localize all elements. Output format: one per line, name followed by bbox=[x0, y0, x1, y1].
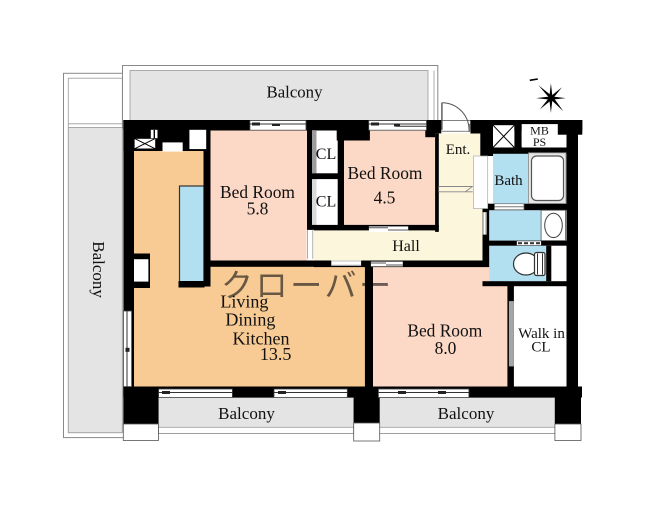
svg-text:Dining: Dining bbox=[225, 310, 275, 330]
svg-text:Balcony: Balcony bbox=[218, 404, 275, 423]
svg-text:CL: CL bbox=[316, 146, 336, 163]
svg-text:Bath: Bath bbox=[494, 173, 523, 189]
svg-text:Hall: Hall bbox=[392, 238, 420, 255]
svg-text:8.0: 8.0 bbox=[435, 338, 457, 358]
svg-text:Balcony: Balcony bbox=[267, 83, 324, 102]
svg-text:Ent.: Ent. bbox=[446, 142, 471, 158]
svg-text:5.8: 5.8 bbox=[247, 199, 269, 219]
svg-text:Living: Living bbox=[220, 292, 268, 312]
svg-text:PS: PS bbox=[533, 135, 546, 149]
svg-text:4.5: 4.5 bbox=[374, 187, 396, 207]
svg-text:Balcony: Balcony bbox=[89, 241, 108, 298]
svg-text:13.5: 13.5 bbox=[260, 344, 292, 364]
svg-text:CL: CL bbox=[316, 194, 336, 211]
svg-text:CL: CL bbox=[531, 340, 550, 356]
svg-text:Bed Room: Bed Room bbox=[348, 163, 423, 183]
svg-text:Balcony: Balcony bbox=[438, 404, 495, 423]
